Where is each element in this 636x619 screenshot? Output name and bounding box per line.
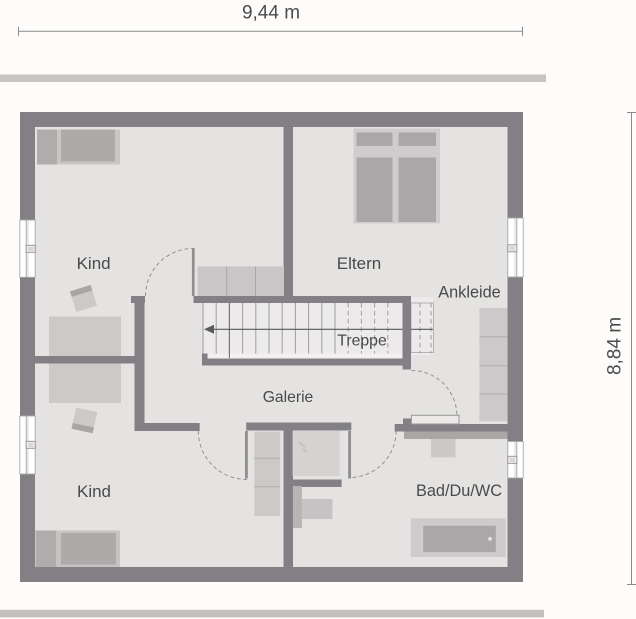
svg-text:Kind: Kind: [77, 254, 111, 273]
svg-text:8,84 m: 8,84 m: [605, 317, 626, 375]
svg-text:Treppe: Treppe: [337, 333, 387, 350]
svg-text:Ankleide: Ankleide: [438, 284, 500, 302]
svg-text:Kind: Kind: [77, 482, 111, 501]
svg-text:Eltern: Eltern: [337, 254, 381, 273]
svg-text:9,44 m: 9,44 m: [242, 3, 300, 24]
svg-text:Galerie: Galerie: [263, 389, 314, 406]
svg-text:Bad/Du/WC: Bad/Du/WC: [416, 482, 502, 500]
